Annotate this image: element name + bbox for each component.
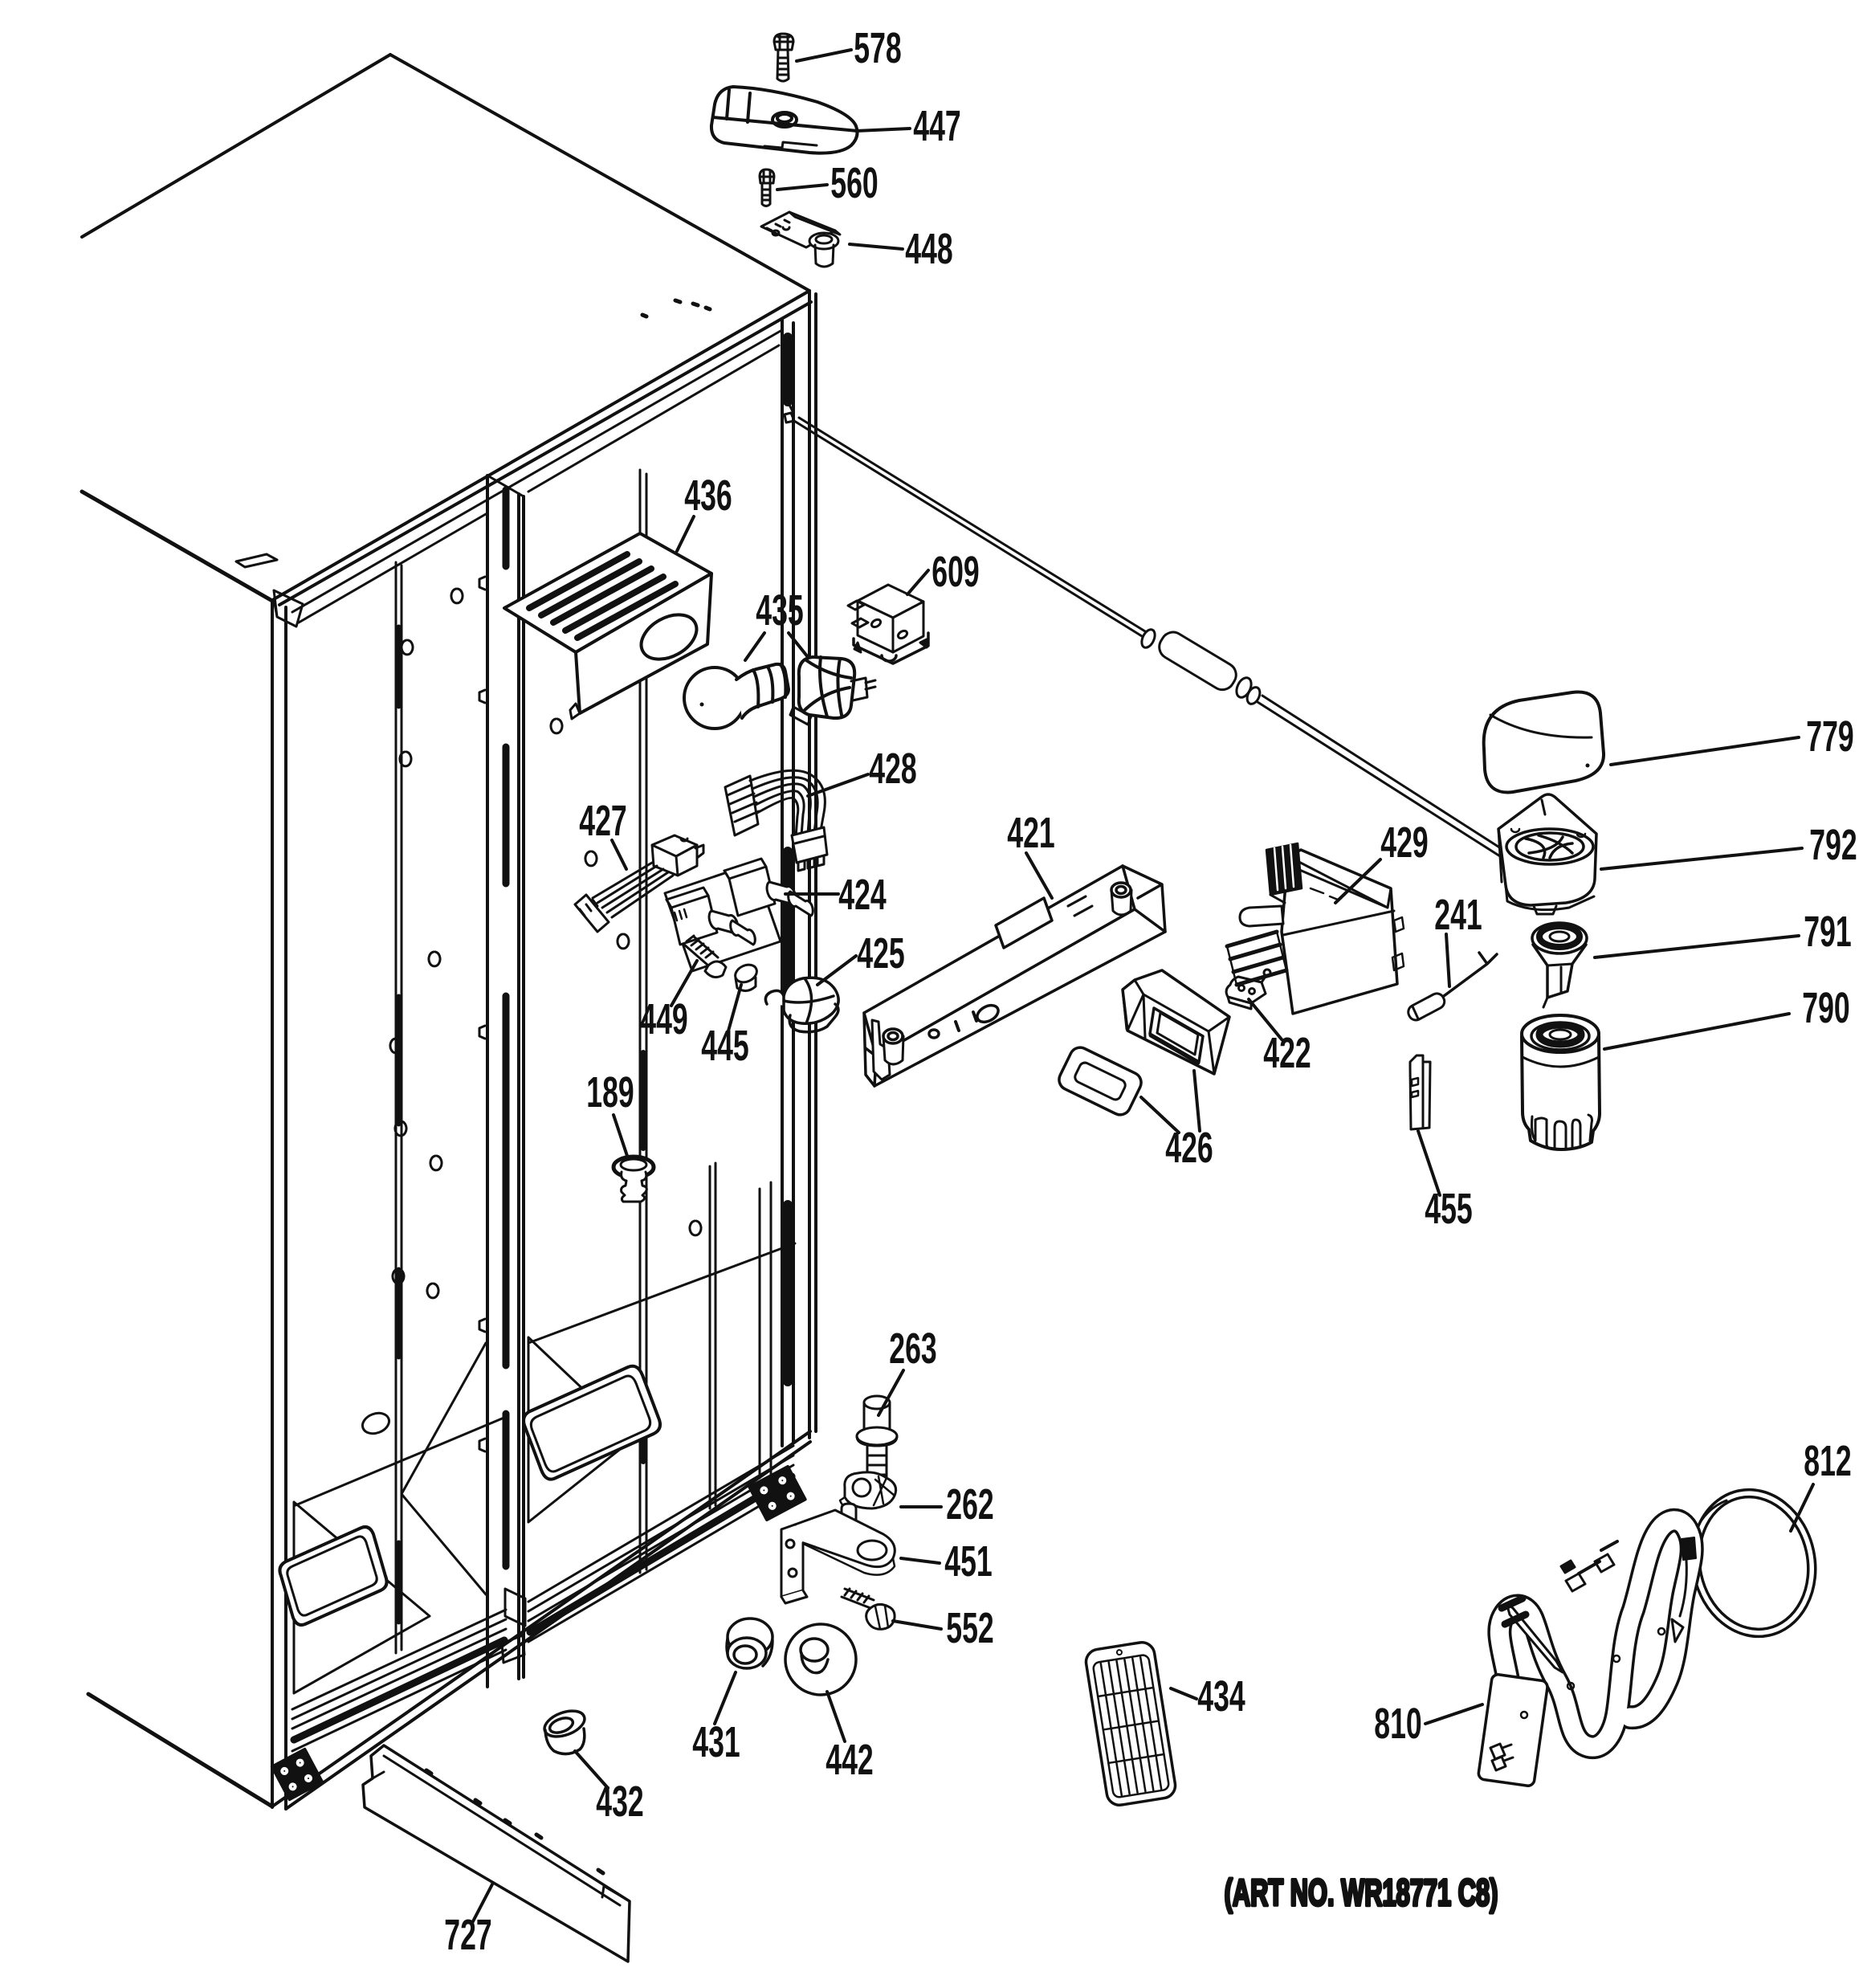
svg-text:445: 445: [701, 1022, 748, 1070]
svg-text:436: 436: [684, 471, 732, 520]
svg-text:429: 429: [1380, 818, 1428, 867]
svg-text:790: 790: [1802, 984, 1849, 1032]
svg-text:421: 421: [1007, 809, 1054, 857]
svg-text:447: 447: [913, 102, 960, 150]
svg-text:449: 449: [640, 995, 687, 1043]
svg-text:435: 435: [756, 586, 803, 635]
svg-text:442: 442: [826, 1736, 873, 1784]
svg-text:262: 262: [946, 1480, 993, 1529]
svg-text:263: 263: [889, 1325, 936, 1373]
svg-text:560: 560: [830, 159, 878, 207]
svg-text:426: 426: [1165, 1124, 1213, 1172]
svg-text:791: 791: [1804, 908, 1851, 956]
svg-text:810: 810: [1374, 1700, 1421, 1748]
svg-text:727: 727: [444, 1911, 491, 1959]
svg-text:451: 451: [944, 1537, 992, 1586]
svg-text:609: 609: [931, 548, 979, 596]
svg-text:422: 422: [1263, 1029, 1311, 1077]
svg-text:455: 455: [1425, 1185, 1472, 1233]
svg-text:189: 189: [586, 1068, 634, 1116]
svg-text:424: 424: [838, 871, 887, 919]
svg-text:552: 552: [946, 1604, 993, 1652]
svg-text:431: 431: [692, 1718, 740, 1766]
svg-text:792: 792: [1809, 821, 1857, 869]
svg-text:578: 578: [854, 24, 901, 72]
svg-text:812: 812: [1804, 1437, 1851, 1485]
svg-text:425: 425: [857, 929, 904, 978]
svg-text:241: 241: [1434, 891, 1482, 939]
svg-text:434: 434: [1197, 1672, 1245, 1721]
svg-text:(ART NO. WR18771 C8): (ART NO. WR18771 C8): [1225, 1873, 1498, 1914]
svg-text:428: 428: [869, 745, 916, 793]
svg-text:427: 427: [579, 797, 626, 845]
svg-text:432: 432: [596, 1778, 643, 1826]
svg-text:448: 448: [905, 225, 952, 273]
svg-text:779: 779: [1806, 712, 1853, 761]
